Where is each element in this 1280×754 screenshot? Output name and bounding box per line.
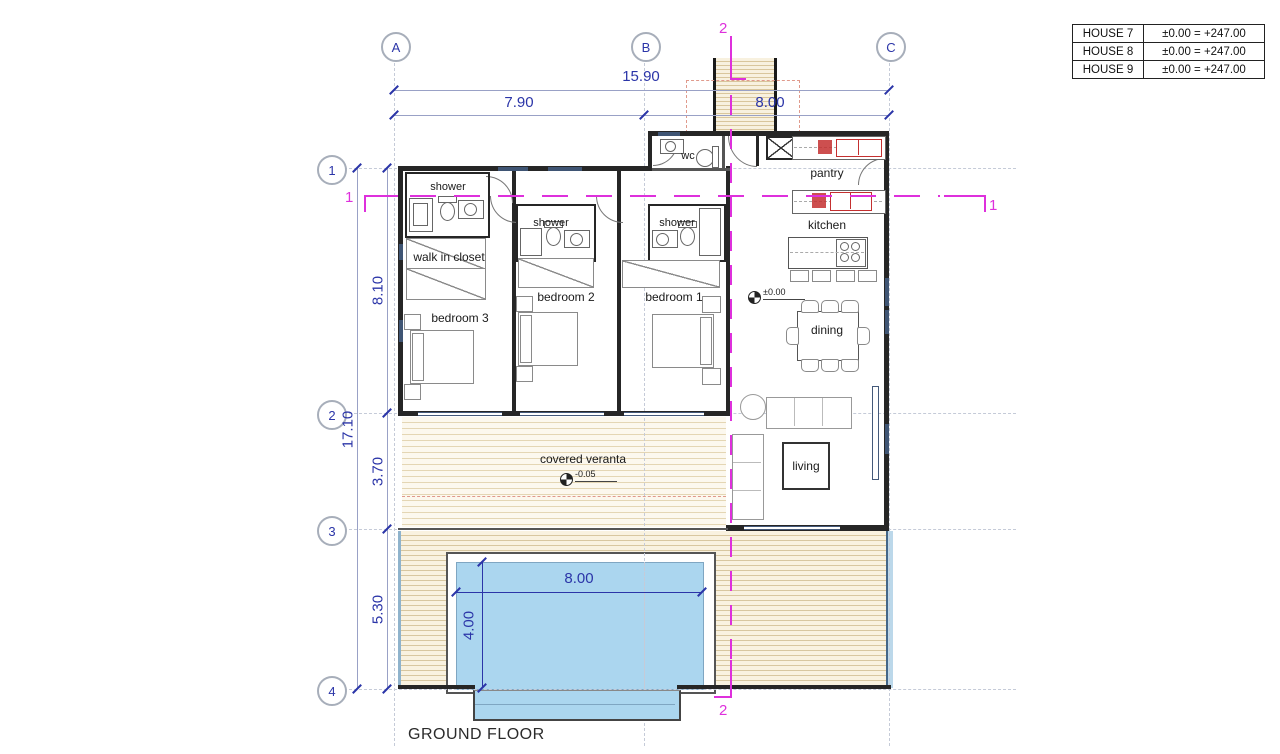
label-wc: wc — [668, 150, 708, 162]
sink — [656, 233, 669, 246]
island-centerline — [790, 252, 864, 253]
dining-chair — [801, 359, 819, 372]
toilet — [546, 227, 561, 246]
grid-line-B-pool — [644, 562, 645, 688]
title-block-row: HOUSE 7 ±0.00 = +247.00 — [1073, 25, 1265, 43]
dim-line-depth-segments — [387, 168, 388, 689]
dim-seg-1-2: 8.10 — [370, 251, 387, 331]
label-bedroom-3: bedroom 3 — [410, 311, 510, 325]
shower2-tray — [520, 228, 542, 256]
roof-outline-veranda — [402, 496, 726, 497]
grid-bubble-B: B — [631, 32, 661, 62]
deck-edge-left — [398, 531, 401, 687]
house-level: ±0.00 = +247.00 — [1144, 61, 1265, 79]
pantry-appliance — [818, 140, 832, 154]
wall-deck-south-right — [677, 685, 891, 689]
bed-pillow — [520, 315, 532, 363]
label-pantry: pantry — [787, 166, 867, 180]
window — [885, 310, 889, 334]
grid-label-a: A — [392, 40, 401, 55]
stool — [858, 270, 877, 282]
house-level: ±0.00 = +247.00 — [1144, 25, 1265, 43]
dim-seg-2-3: 3.70 — [370, 432, 387, 512]
title-block-row: HOUSE 9 ±0.00 = +247.00 — [1073, 61, 1265, 79]
bedroom1-door-arc — [596, 196, 623, 223]
toilet — [680, 227, 695, 246]
wall-left — [398, 166, 403, 416]
level-line — [763, 299, 805, 300]
label-shower-1: shower — [637, 217, 717, 229]
grid-label-b: B — [642, 40, 651, 55]
appliance-divider — [858, 139, 859, 155]
wall-wc-right — [722, 136, 725, 171]
grid-bubble-A: A — [381, 32, 411, 62]
dining-chair — [841, 359, 859, 372]
window — [885, 278, 889, 306]
sofa-vertical — [732, 434, 764, 520]
veranda-floor — [402, 417, 726, 527]
entrance-door-leaf — [756, 136, 759, 166]
shower1-tray — [699, 208, 721, 256]
section-2-label-top: 2 — [719, 20, 727, 37]
label-veranda: covered veranta — [503, 452, 663, 466]
grid-label-1: 1 — [328, 163, 335, 178]
window — [548, 167, 582, 171]
dining-chair — [841, 300, 859, 313]
nightstand — [702, 368, 721, 385]
label-shower-3: shower — [408, 181, 488, 193]
grid-label-2: 2 — [328, 408, 335, 423]
section-1-line-left — [364, 195, 398, 197]
dim-bay-right: 8.00 — [730, 94, 810, 111]
dim-overall-width: 15.90 — [601, 68, 681, 85]
label-bedroom-1: bedroom 1 — [624, 290, 724, 304]
section-2-tail-top — [730, 78, 746, 80]
label-bedroom-2: bedroom 2 — [516, 290, 616, 304]
bed-pillow — [412, 333, 424, 381]
coffee-table — [740, 394, 766, 420]
nightstand — [404, 384, 421, 400]
sliding-panel — [872, 386, 879, 480]
grid-bubble-3: 3 — [317, 516, 347, 546]
title-block: HOUSE 7 ±0.00 = +247.00 HOUSE 8 ±0.00 = … — [1072, 24, 1265, 79]
section-1-tick-left — [364, 195, 366, 212]
grid-label-c: C — [886, 40, 895, 55]
label-walk-in-closet: walk in closet — [412, 250, 486, 265]
section-2-line — [730, 36, 732, 80]
dim-pool-length: 8.00 — [539, 570, 619, 587]
section-2-dash — [730, 95, 732, 660]
entrance-door-arc — [728, 136, 757, 167]
window — [658, 132, 680, 136]
grid-label-3: 3 — [328, 524, 335, 539]
level-text-ground: ±0.00 — [763, 287, 785, 297]
section-2-tail-bottom — [714, 696, 732, 698]
bedroom3-door-arc — [486, 176, 513, 203]
sink — [464, 203, 477, 216]
dim-line-pool-width — [482, 562, 483, 688]
living-label: living — [792, 459, 819, 473]
grid-bubble-1: 1 — [317, 155, 347, 185]
stool — [790, 270, 809, 282]
section-2-label-bottom: 2 — [719, 702, 727, 719]
burner — [851, 253, 860, 262]
house-name: HOUSE 9 — [1073, 61, 1144, 79]
stool — [836, 270, 855, 282]
grid-label-4: 4 — [328, 684, 335, 699]
wall-deck-south-left — [398, 685, 475, 689]
window — [399, 320, 403, 342]
dining-chair — [821, 300, 839, 313]
stool — [812, 270, 831, 282]
nightstand — [516, 366, 533, 382]
shower3-tray-inner — [413, 203, 428, 226]
dim-bay-left: 7.90 — [479, 94, 559, 111]
dim-line-pool-length — [456, 592, 702, 593]
pool-steps — [473, 690, 681, 721]
wc-toilet-tank — [712, 146, 719, 168]
sink — [570, 233, 583, 246]
section-1-dash — [410, 195, 940, 197]
level-marker-veranda — [560, 473, 573, 486]
wall-wc-bottom — [652, 168, 730, 171]
section-2-line-bottom — [730, 660, 732, 698]
wall-wc-left — [648, 131, 652, 171]
pool-step-line — [475, 704, 675, 705]
section-1-label-left: 1 — [345, 189, 353, 206]
section-1-label-right: 1 — [989, 197, 997, 214]
sliding-door — [520, 412, 604, 416]
dining-chair — [821, 359, 839, 372]
burner — [840, 253, 849, 262]
pantry-appliance-unit — [836, 139, 882, 157]
grid-bubble-C: C — [876, 32, 906, 62]
dim-line-overall-width — [394, 90, 889, 91]
closet-unit — [406, 268, 486, 300]
grid-line-A — [394, 58, 395, 746]
burner — [840, 242, 849, 251]
dim-pool-width: 4.00 — [461, 586, 478, 666]
drawing-title: GROUND FLOOR — [408, 726, 545, 744]
sliding-door — [624, 412, 704, 416]
floor-plan-canvas: A B C 1 2 3 4 15.90 7.90 8.00 17.10 8.10… — [0, 0, 1280, 754]
house-level: ±0.00 = +247.00 — [1144, 43, 1265, 61]
window — [885, 424, 889, 454]
house-name: HOUSE 7 — [1073, 25, 1144, 43]
sliding-door — [418, 412, 502, 416]
section-1-tick-right — [984, 195, 986, 212]
label-dining: dining — [787, 323, 867, 337]
window — [498, 167, 528, 171]
grid-bubble-4: 4 — [317, 676, 347, 706]
grid-line-C — [889, 58, 890, 746]
sofa-cushion-line — [822, 398, 823, 426]
level-text-veranda: -0.05 — [575, 469, 596, 479]
living-label-box: living — [782, 442, 830, 490]
dim-seg-3-4: 5.30 — [370, 570, 387, 650]
label-kitchen: kitchen — [787, 218, 867, 232]
sofa-cushion-line — [733, 462, 761, 463]
dim-overall-depth: 17.10 — [340, 390, 357, 470]
house-name: HOUSE 8 — [1073, 43, 1144, 61]
label-shower-2: shower — [511, 217, 591, 229]
toilet — [440, 202, 455, 221]
dining-chair — [801, 300, 819, 313]
sofa-cushion-line — [733, 490, 761, 491]
title-block-row: HOUSE 8 ±0.00 = +247.00 — [1073, 43, 1265, 61]
level-marker-ground — [748, 291, 761, 304]
sofa-cushion-line — [794, 398, 795, 426]
sliding-door-living — [744, 526, 840, 530]
bed-pillow — [700, 317, 712, 365]
window — [399, 244, 403, 260]
level-line — [575, 481, 617, 482]
veranda-edge — [398, 528, 728, 530]
wardrobe-bedroom1 — [622, 260, 720, 288]
wardrobe-bedroom2 — [518, 258, 594, 288]
section-1-line-right — [944, 195, 986, 197]
dim-line-overall-depth — [357, 168, 358, 689]
burner — [851, 242, 860, 251]
sofa-horizontal — [766, 397, 852, 429]
